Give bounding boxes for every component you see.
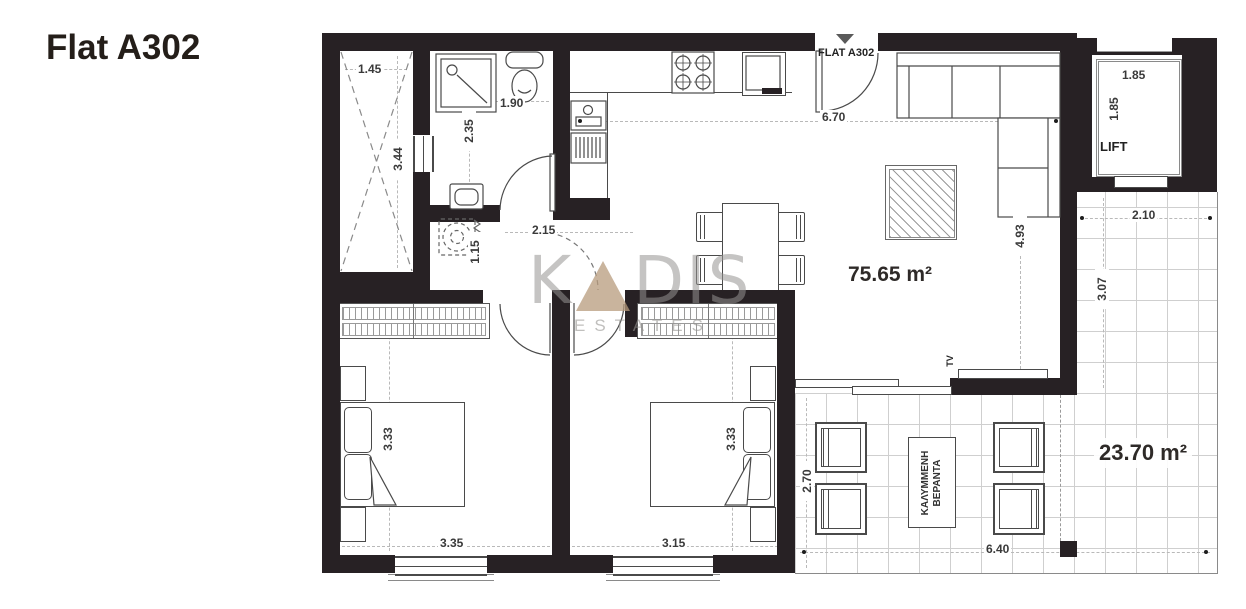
wall-lightwell-right-lower [413,172,430,277]
pillow [344,407,372,453]
dim-laundry-height: 1.15 [468,232,482,272]
watermark-letter-a [576,261,630,311]
dim-line [575,121,1058,122]
nightstand [750,366,776,401]
wall-bottom-2 [487,555,613,573]
wall-tv [950,378,1077,395]
dim-terrace-side-width: 2.10 [1130,208,1157,222]
wall-bedroom2-top [637,290,777,303]
wall-lightwell-right-upper [413,51,430,135]
dim-bedroom1-height: 3.33 [381,419,395,459]
lift-door [1114,176,1168,188]
wall-bathroom-bottom [420,205,500,222]
dim-bathroom-height: 2.35 [462,111,476,151]
wall-bottom-1 [322,555,395,573]
terrace-armchair [815,483,867,535]
pillow [743,407,771,453]
dim-terrace-side-height: 3.07 [1095,269,1109,309]
kitchen-sink [571,101,606,163]
dim-line [1020,56,1021,374]
bedroom1-wardrobe [338,303,490,339]
entrance-arrow-icon [836,34,854,44]
dim-bedroom2-width: 3.15 [660,536,687,550]
dim-lift-width: 1.85 [1120,68,1147,82]
pillow [344,454,372,500]
dim-line [437,101,549,102]
living-area-label: 75.65 m² [848,263,932,287]
dim-dot [802,550,806,554]
entrance-label: FLAT A302 [818,47,874,59]
bedroom2-door [574,303,624,355]
wall-bedroom2-stub [625,290,637,337]
lift-label: LIFT [1100,139,1127,154]
dim-hallway-width: 2.15 [530,223,557,237]
fridge [742,52,786,96]
wall-left [322,33,340,573]
nightstand [340,507,366,542]
terrace-armchair [815,422,867,473]
kitchen-counter-edge-left [607,92,608,198]
terrace-sliding-door-panel-2 [852,386,952,395]
pillow [743,454,771,500]
dim-light-well-height: 3.44 [391,139,405,179]
dim-lift-height: 1.85 [1107,89,1121,129]
wall-living-right [1060,51,1077,395]
dim-bathroom-width: 1.90 [498,96,525,110]
dim-light-well-width: 1.45 [356,62,383,76]
bedroom2-wardrobe [637,303,779,339]
dim-living-width: 6.70 [820,110,847,124]
bedroom1-door [500,303,550,355]
dim-dot [1080,216,1084,220]
dim-dot [1204,550,1208,554]
wall-top-left [340,33,815,51]
nightstand [340,366,366,401]
lightwell-window [413,136,434,172]
wardrobe-hangers [342,307,486,320]
dining-chair [777,212,805,242]
wall-kitchen-stub [553,198,610,220]
dim-terrace-height: 2.70 [800,461,814,501]
terrace-overhang-line [1060,395,1061,541]
terrace-area-label: 23.70 m² [1094,438,1192,468]
dim-living-height: 4.93 [1013,216,1027,256]
wall-lightwell-bottom [322,272,430,290]
floor-plan-canvas: Flat A302 LIFT FLAT A302 [0,0,1246,609]
lift-top-recess [1097,38,1172,52]
hallway-door-swing [540,232,598,290]
dim-bedroom2-height: 3.33 [724,419,738,459]
bedroom1-window [395,556,487,576]
entrance-door [816,51,878,112]
dim-line [505,232,633,233]
wall-bath-kitchen-divider [553,51,570,212]
dim-dot [1054,119,1058,123]
stove [672,52,714,93]
terrace-column [1060,541,1077,557]
terrace-armchair [993,422,1045,473]
dining-chair [696,212,724,242]
terrace-table: ΚΑΛΥΜΜΕΝΗ ΒΕΡΑΝΤΑ [908,437,956,528]
bedroom2-window [613,556,713,576]
wall-bedrooms-divider [552,290,570,555]
tv-shelf [958,369,1048,379]
dim-bedroom1-width: 3.35 [438,536,465,550]
wall-bedroom2-right [777,290,795,573]
tv-label: TV [945,355,955,367]
shower [436,54,496,112]
wall-top-right [878,33,1077,51]
veranda-label: ΚΑΛΥΜΜΕΝΗ ΒΕΡΑΝΤΑ [920,450,944,515]
dim-dot [578,119,582,123]
living-rug [885,165,957,240]
dining-table [722,203,779,292]
toilet [506,52,543,102]
bathroom-door [500,154,555,211]
wall-bedroom1-top [322,290,483,303]
dining-chair [696,255,724,285]
dim-dot [1208,216,1212,220]
wardrobe-hangers [342,323,486,336]
dim-terrace-width: 6.40 [984,542,1011,556]
nightstand [750,507,776,542]
page-title: Flat A302 [46,28,200,68]
dining-chair [777,255,805,285]
terrace-armchair [993,483,1045,535]
